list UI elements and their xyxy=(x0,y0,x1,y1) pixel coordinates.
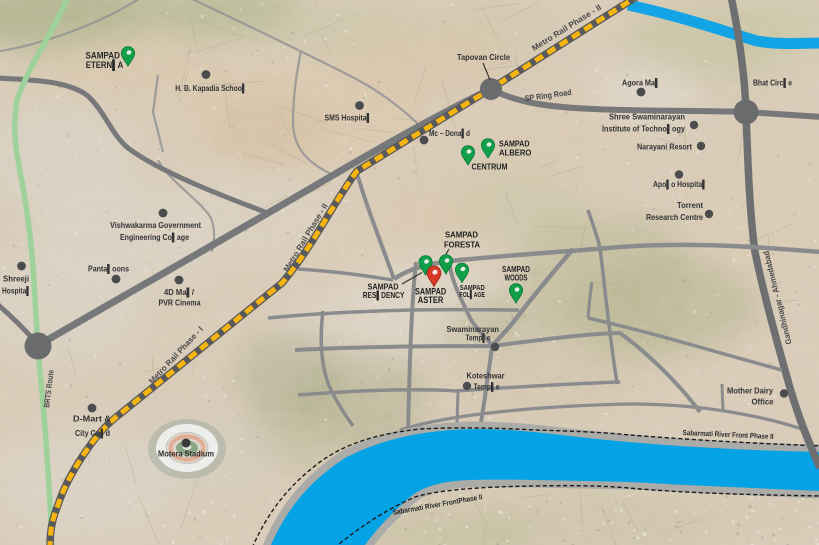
svg-text:Institute of Techno▌ogy: Institute of Techno▌ogy xyxy=(602,124,685,135)
svg-text:Panta▌oons: Panta▌oons xyxy=(88,264,129,275)
svg-text:ALBERO: ALBERO xyxy=(499,149,532,158)
svg-text:Apo▌o Hospita▌: Apo▌o Hospita▌ xyxy=(653,179,707,190)
svg-text:Agora Ma▌: Agora Ma▌ xyxy=(622,78,660,89)
svg-text:FOL▌AGE: FOL▌AGE xyxy=(459,290,485,300)
svg-text:SAMPAD: SAMPAD xyxy=(499,140,530,149)
svg-text:4D Ma▌/: 4D Ma▌/ xyxy=(164,287,195,298)
svg-text:Temp▌e: Temp▌e xyxy=(474,382,500,393)
svg-text:Temp▌e: Temp▌e xyxy=(466,333,491,344)
svg-text:D-Mart &: D-Mart & xyxy=(73,415,111,424)
svg-text:Shree Swaminarayan: Shree Swaminarayan xyxy=(609,113,685,122)
svg-text:Hospita▌: Hospita▌ xyxy=(2,286,31,297)
svg-text:Vishwakarma Government: Vishwakarma Government xyxy=(110,221,201,230)
svg-text:Shreeji: Shreeji xyxy=(3,275,29,284)
svg-text:Motera Stadium: Motera Stadium xyxy=(158,450,214,459)
svg-text:FORESTA: FORESTA xyxy=(444,241,480,250)
svg-text:City Go▌d: City Go▌d xyxy=(75,428,110,439)
svg-text:WOODS: WOODS xyxy=(505,274,528,283)
svg-text:Koteshwar: Koteshwar xyxy=(467,372,506,381)
svg-text:Mc – Dona▌d: Mc – Dona▌d xyxy=(429,128,470,139)
svg-text:Mother Dairy: Mother Dairy xyxy=(727,387,773,396)
svg-text:ETERN▌A: ETERN▌A xyxy=(86,59,124,71)
svg-text:CENTRUM: CENTRUM xyxy=(472,163,508,172)
svg-text:Tapovan Circle: Tapovan Circle xyxy=(457,53,510,62)
svg-text:SAMPAD: SAMPAD xyxy=(445,231,478,240)
svg-text:Torrent: Torrent xyxy=(677,201,703,210)
svg-text:PVR Cinema: PVR Cinema xyxy=(159,299,201,308)
svg-text:ASTER: ASTER xyxy=(418,295,444,305)
svg-text:SMS Hospita▌: SMS Hospita▌ xyxy=(325,113,372,124)
svg-text:Engineering Co▌age: Engineering Co▌age xyxy=(120,232,189,243)
svg-text:H. B. Kapadia Schoo▌: H. B. Kapadia Schoo▌ xyxy=(175,83,247,94)
svg-text:RES▌DENCY: RES▌DENCY xyxy=(363,290,405,301)
svg-text:Office: Office xyxy=(752,398,774,407)
svg-text:Narayani Resort: Narayani Resort xyxy=(637,143,692,152)
svg-text:Bhat Circ▌e: Bhat Circ▌e xyxy=(753,78,792,89)
svg-text:Research Centre: Research Centre xyxy=(646,213,703,222)
